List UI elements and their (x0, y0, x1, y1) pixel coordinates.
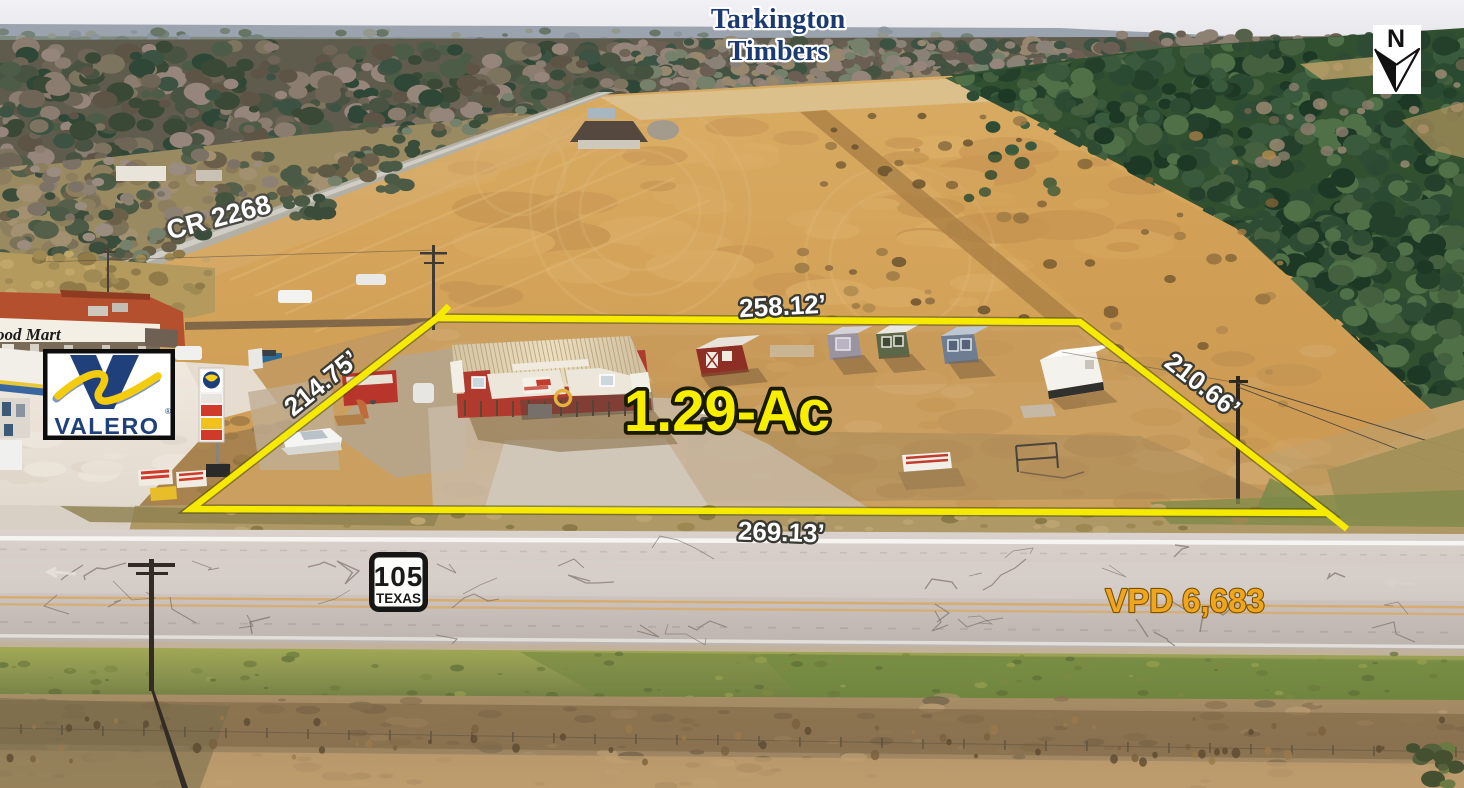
svg-text:N: N (1387, 25, 1405, 53)
svg-text:Timbers: Timbers (728, 36, 829, 67)
svg-text:258.12’: 258.12’ (738, 289, 826, 323)
svg-text:Tarkington: Tarkington (711, 4, 846, 35)
svg-text:105: 105 (374, 561, 424, 592)
svg-text:VPD 6,683: VPD 6,683 (1105, 582, 1265, 619)
svg-text:269.13’: 269.13’ (737, 516, 825, 549)
svg-text:TEXAS: TEXAS (376, 591, 421, 606)
svg-text:ood Mart: ood Mart (0, 325, 62, 344)
svg-text:®: ® (165, 407, 171, 416)
svg-text:1.29-Ac: 1.29-Ac (624, 379, 830, 444)
svg-text:VALERO: VALERO (54, 413, 159, 439)
